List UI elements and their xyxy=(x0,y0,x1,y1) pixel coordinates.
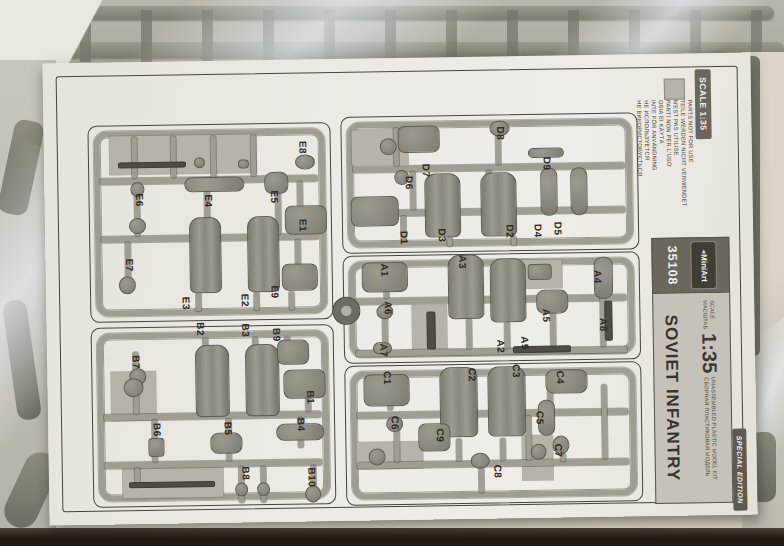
sprue-stub xyxy=(456,439,461,461)
sprue-stub xyxy=(171,137,177,178)
part-label-D6: D6 xyxy=(404,176,415,190)
part-label-E4: E4 xyxy=(203,194,214,207)
part-label-C1: C1 xyxy=(382,371,393,385)
part-label-A7: A7 xyxy=(378,343,389,357)
sprue-part-torso xyxy=(351,196,399,227)
sprue-part-torso xyxy=(282,263,318,291)
sprue-stub xyxy=(132,137,138,178)
part-label-A1: A1 xyxy=(379,263,390,277)
part-label-E5: E5 xyxy=(269,190,280,203)
kit-title: SOVIET INFANTRY xyxy=(660,315,683,482)
part-label-A4: A4 xyxy=(592,270,603,284)
not-for-use-legend: PARTS NOT FOR USETEILE WERDEN NICHT VERW… xyxy=(633,99,695,252)
part-label-B5: B5 xyxy=(223,422,234,436)
scale-band: SCALE 1:35 xyxy=(695,69,712,139)
sprue-part-small xyxy=(528,264,552,280)
scale-words: SCALEМАСШТАБ xyxy=(701,300,715,329)
scale-word: МАСШТАБ xyxy=(701,300,708,329)
sprue-stub xyxy=(297,182,302,208)
part-label-A6: A6 xyxy=(383,301,394,315)
sprue-part-legs xyxy=(245,344,280,417)
instruction-sheet: E8E6E4E5E1E7E3E2E9B2B3B9B7B1B6B5B4B8B10D… xyxy=(42,52,757,525)
part-label-A8: A8 xyxy=(598,318,609,332)
part-label-C8: C8 xyxy=(492,465,503,479)
sprue-part-armv xyxy=(570,167,588,215)
sprue-part-ball xyxy=(194,157,205,168)
scale-word: SCALE xyxy=(708,300,715,329)
special-edition-label: SPECIAL EDITION xyxy=(736,436,744,504)
sprue-part-arm xyxy=(184,176,244,192)
sprue-stub xyxy=(211,136,217,177)
sprue-stub xyxy=(295,240,300,266)
table-edge-shadow xyxy=(0,528,784,546)
part-label-A5: A5 xyxy=(541,309,552,323)
miniart-logo: ▲ MiniArt xyxy=(692,242,717,288)
part-label-B3: B3 xyxy=(240,323,251,337)
sprue-stub xyxy=(479,467,484,493)
sprue-part-arm xyxy=(210,432,242,454)
part-label-D8: D8 xyxy=(495,126,506,140)
part-label-B8: B8 xyxy=(240,466,251,480)
part-label-D4: D4 xyxy=(532,224,543,238)
part-label-D5: D5 xyxy=(552,222,563,236)
part-label-C4: C4 xyxy=(555,371,566,385)
part-label-A9: A9 xyxy=(519,336,530,350)
sprue-stub xyxy=(447,237,452,246)
part-label-B4: B4 xyxy=(296,418,307,432)
part-label-A2: A2 xyxy=(495,339,506,353)
part-label-D2: D2 xyxy=(504,224,515,238)
sprue-stub xyxy=(289,292,294,310)
part-label-C9: C9 xyxy=(435,428,446,442)
part-label-D7: D7 xyxy=(421,164,432,178)
sprue-part-small xyxy=(238,159,249,168)
part-label-B10: B10 xyxy=(306,467,317,487)
part-label-B6: B6 xyxy=(152,423,163,437)
not-for-use-swatch xyxy=(664,79,685,100)
part-label-B9: B9 xyxy=(271,328,282,342)
part-label-B7: B7 xyxy=(131,355,142,369)
part-label-D1: D1 xyxy=(399,231,410,245)
part-label-C7: C7 xyxy=(553,444,564,458)
part-label-E7: E7 xyxy=(124,259,135,272)
sprue-part-dark xyxy=(118,161,186,168)
kit-type-lines: UNASSEMBLED PLASTIC MODEL KITСБОРНАЯ ПЛА… xyxy=(702,377,718,480)
sprue-stub xyxy=(500,438,505,460)
part-label-B2: B2 xyxy=(195,322,206,336)
sprue-part-head xyxy=(235,482,248,496)
scale-value: 1:35 xyxy=(697,333,721,373)
title-column: SOVIET INFANTRY xyxy=(653,293,690,503)
part-label-E3: E3 xyxy=(181,297,192,310)
kit-number-band: 35108 ▲ MiniArt xyxy=(651,237,730,294)
sprue-part-darkv xyxy=(426,311,436,349)
part-label-C2: C2 xyxy=(467,368,478,382)
sprue-part-legs xyxy=(189,217,222,293)
title-block: 35108 ▲ MiniArt SOVIET INFANTRY SCALEМАС… xyxy=(651,237,733,504)
scale-band-label: SCALE 1:35 xyxy=(698,78,709,131)
title-band: SOVIET INFANTRY SCALEМАСШТАБ 1:35 UNASSE… xyxy=(652,293,733,504)
part-label-B1: B1 xyxy=(305,390,316,404)
part-label-C5: C5 xyxy=(534,411,545,425)
part-label-E2: E2 xyxy=(240,294,251,307)
sprue-part-legs xyxy=(490,258,527,323)
sprue-part-small xyxy=(148,438,164,457)
miniart-logo-text: MiniArt xyxy=(699,254,708,282)
part-label-E9: E9 xyxy=(269,285,280,298)
part-label-D9: D9 xyxy=(541,157,552,171)
sprue-part-arm xyxy=(545,369,587,394)
sprue-part-torso xyxy=(277,339,309,364)
sprue-part-armv xyxy=(540,168,558,216)
part-label-A3: A3 xyxy=(457,255,468,269)
sprue-stub xyxy=(196,293,201,311)
sprue-part-head xyxy=(257,482,270,496)
sprue-stub xyxy=(251,135,257,176)
sprue-part-legs xyxy=(247,216,280,292)
sprue-stub xyxy=(466,319,471,349)
sprue-stub xyxy=(254,292,259,310)
part-label-E8: E8 xyxy=(297,141,308,154)
part-label-E1: E1 xyxy=(297,219,308,232)
part-label-C3: C3 xyxy=(511,364,522,378)
scale-info-column: SCALEМАСШТАБ 1:35 UNASSEMBLED PLASTIC MO… xyxy=(687,293,732,503)
part-label-E6: E6 xyxy=(134,193,145,206)
sprue-part-torso xyxy=(397,125,439,153)
sprue-part-legs xyxy=(195,345,230,418)
special-edition-band: SPECIAL EDITION xyxy=(732,429,747,511)
part-label-D3: D3 xyxy=(437,228,448,242)
kit-number: 35108 xyxy=(665,246,680,286)
part-label-C6: C6 xyxy=(389,416,400,430)
